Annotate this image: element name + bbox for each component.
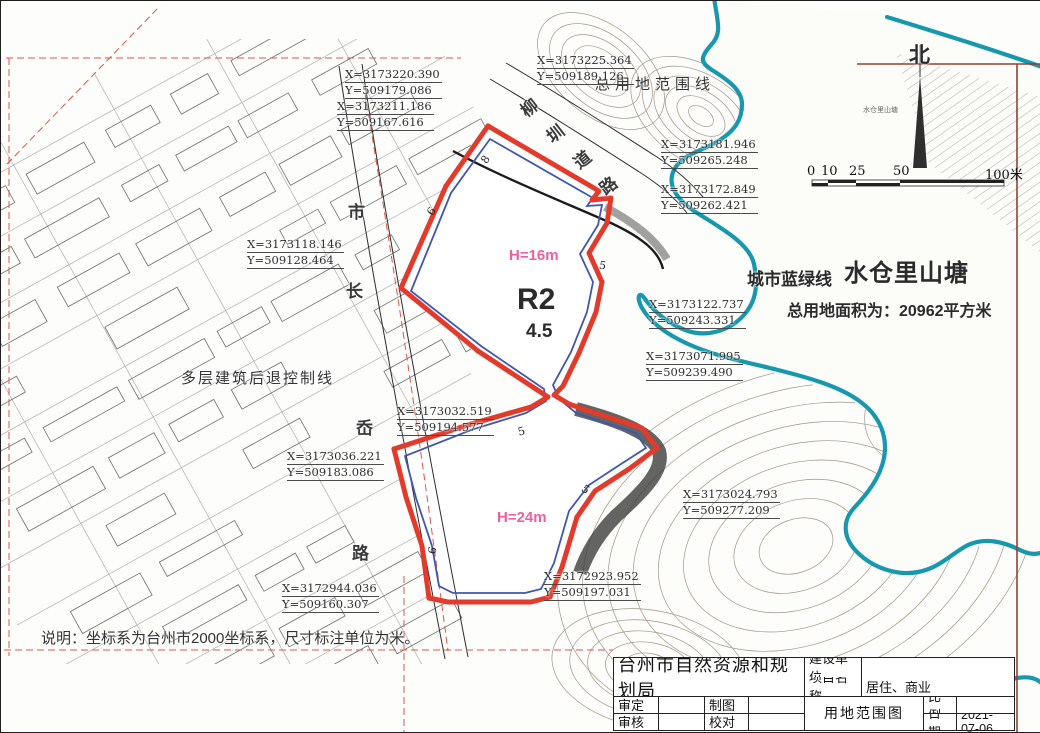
north-label: 北 [909, 39, 930, 69]
setback-line-label: 多层建筑后退控制线 [181, 367, 334, 388]
coordinate-label: X=3173024.793Y=509277.209 [683, 487, 780, 519]
height-limit-upper-label: H=16m [509, 247, 559, 264]
land-use-map-sheet: 总用地范围线 水仓里山塘 北 城市蓝绿线 水仓里山塘 总用地面积为：20962平… [0, 0, 1040, 733]
review-label: 审核 [614, 713, 658, 730]
road-name-char: 路 [352, 539, 369, 564]
road-name-char: 岙 [356, 414, 373, 439]
project-name-value: 居住、商业 [861, 677, 1014, 696]
coordinate-label: X=3172923.952Y=509197.031 [544, 569, 641, 601]
check-value [748, 713, 804, 730]
date-label: 日期 [923, 713, 956, 730]
scale-tick-label: 25 [849, 164, 866, 179]
height-limit-lower-label: H=24m [497, 509, 547, 526]
scale-tick-label: 100米 [985, 164, 1023, 183]
agency-name: 台州市自然资源和规划局 [614, 658, 804, 696]
pond-small-label: 水仓里山塘 [863, 105, 898, 115]
project-name-label: 项目名称 [804, 677, 861, 696]
drawing-title: 用地范围图 [804, 696, 923, 730]
scale-tick-label: 50 [893, 164, 910, 179]
road-name-char: 市 [348, 198, 365, 223]
coordinate-label: X=3173172.849Y=509262.421 [661, 182, 758, 214]
coordinate-label: X=3173122.737Y=509243.331 [649, 297, 746, 329]
construction-unit-label: 建设单位 [804, 658, 861, 677]
zone-far-label: 4.5 [526, 321, 552, 343]
coordinate-label: X=3173181.946Y=509265.248 [661, 137, 758, 169]
coordinate-label: X=3173032.519Y=509194.577 [397, 404, 494, 436]
map-note: 说明：坐标系为台州市2000坐标系，尺寸标注单位为米。 [41, 627, 419, 648]
scale-tick-label: 10 [821, 164, 838, 179]
scale-label: 比例 [923, 696, 956, 713]
draft-label: 制图 [704, 696, 748, 713]
zone-code-label: R2 [517, 283, 555, 317]
coordinate-label: X=3173220.390Y=509179.086 [345, 67, 442, 99]
road-name-char: 长 [346, 277, 363, 302]
coordinate-label: X=3173211.186Y=509167.616 [337, 99, 434, 131]
pond-name-label: 水仓里山塘 [844, 253, 969, 288]
scale-tick-label: 0 [807, 164, 815, 179]
draft-value [748, 696, 804, 713]
coordinate-label: X=3173036.221Y=509183.086 [287, 449, 384, 481]
total-area-label: 总用地面积为：20962平方米 [787, 297, 992, 321]
coordinate-label: X=3173071.995Y=509239.490 [646, 349, 743, 381]
scale-bar [812, 180, 1004, 186]
blue-green-line-label: 城市蓝绿线 [747, 265, 832, 290]
construction-unit-value [861, 658, 1014, 677]
review-value [658, 713, 704, 730]
approve-label: 审定 [614, 696, 658, 713]
coordinate-label: X=3172944.036Y=509160.307 [282, 581, 379, 613]
site-parcel-fill [394, 126, 657, 602]
title-block: 台州市自然资源和规划局 建设单位 项目名称 居住、商业 审定 制图 [613, 657, 1015, 731]
date-value: 2021-07-06 [956, 713, 1014, 730]
approve-value [658, 696, 704, 713]
scale-value [956, 696, 1014, 713]
coordinate-label: X=3173225.364Y=509189.126 [537, 53, 634, 85]
coordinate-label: X=3173118.146Y=509128.464 [247, 237, 344, 269]
check-label: 校对 [704, 713, 748, 730]
